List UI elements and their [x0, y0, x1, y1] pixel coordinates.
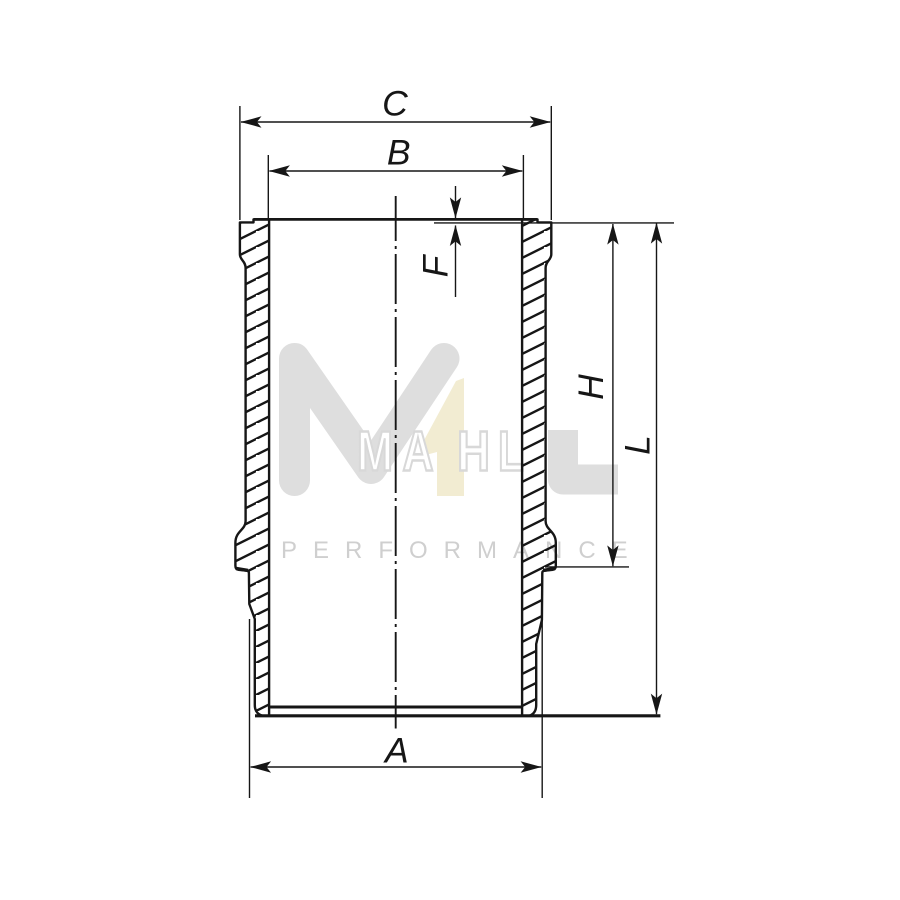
svg-text:PERFORMANCE: PERFORMANCE — [281, 537, 644, 564]
svg-text:A: A — [383, 731, 409, 771]
svg-text:H: H — [571, 374, 611, 400]
svg-text:F: F — [415, 253, 455, 277]
svg-text:H: H — [457, 420, 490, 484]
svg-text:L: L — [618, 435, 658, 455]
svg-text:A: A — [403, 420, 434, 484]
svg-text:L: L — [498, 420, 524, 484]
svg-text:M: M — [357, 420, 393, 484]
svg-text:B: B — [387, 133, 411, 173]
svg-text:C: C — [382, 84, 408, 124]
